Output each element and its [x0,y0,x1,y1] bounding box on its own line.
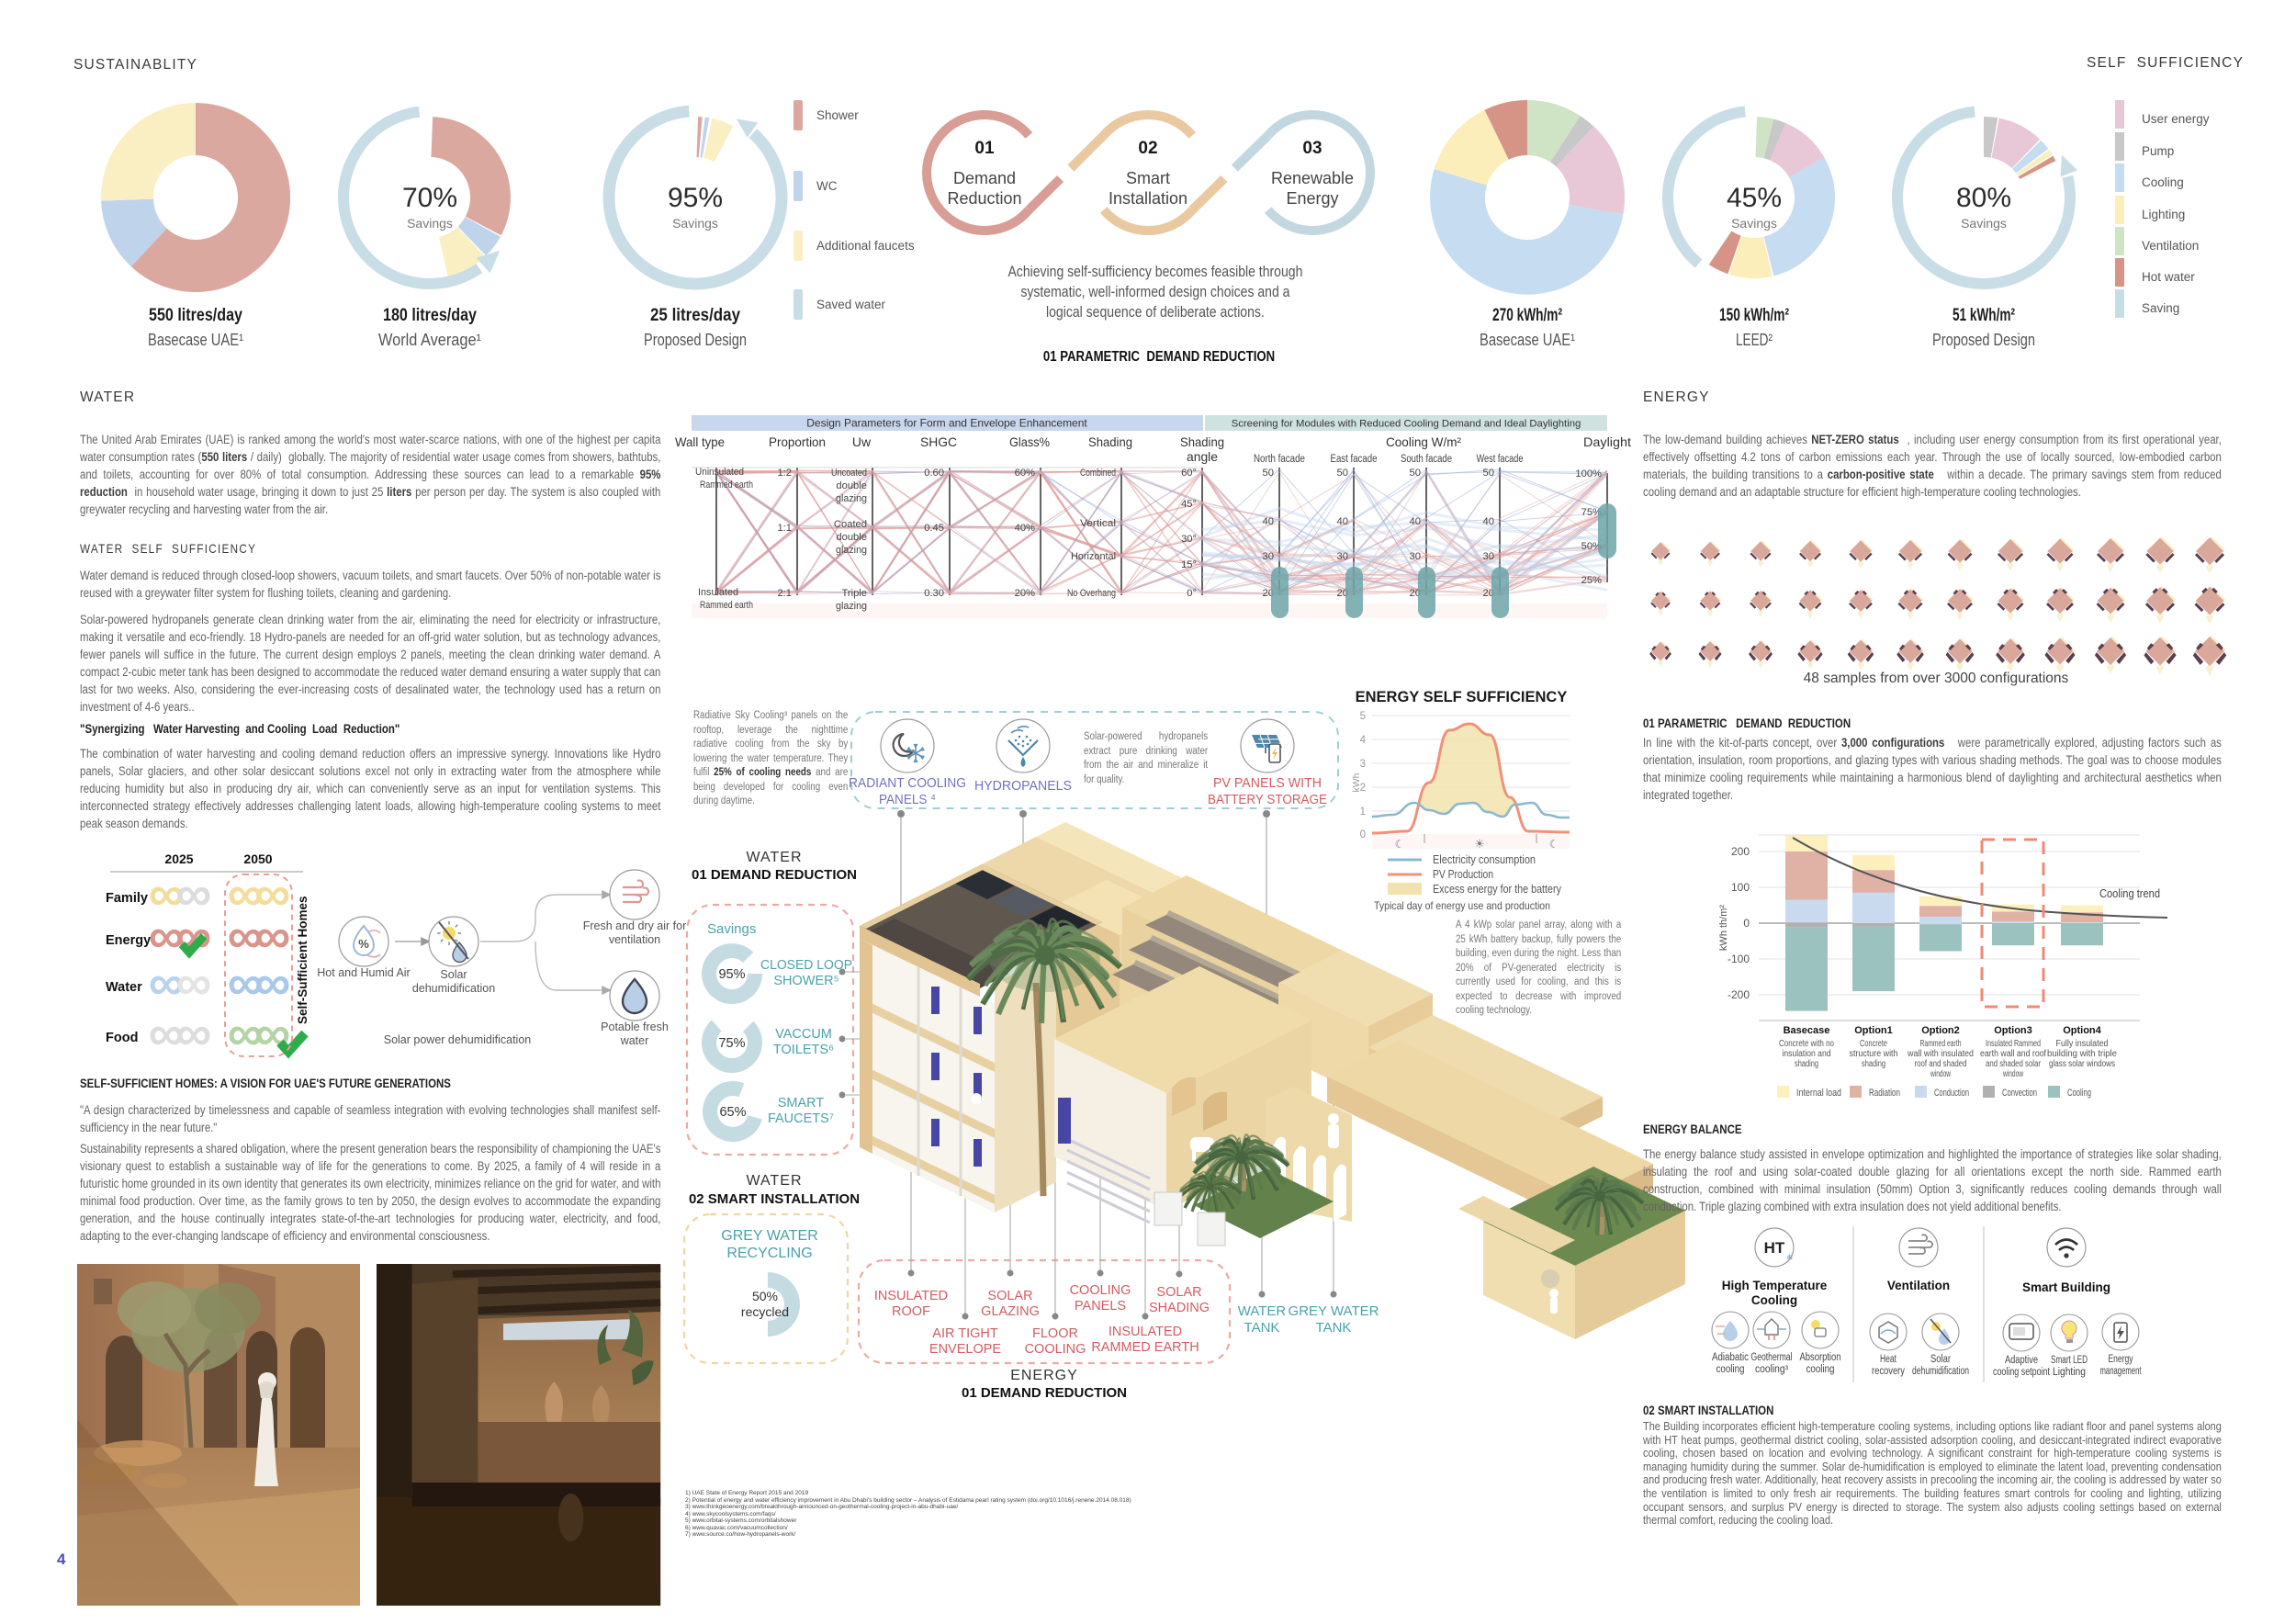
svg-text:0°: 0° [1187,588,1197,599]
svg-text:%: % [358,937,369,951]
svg-text:60°: 60° [1181,468,1197,479]
svg-text:Savings: Savings [1731,216,1777,231]
svg-text:Uninsulated: Uninsulated [695,467,744,478]
svg-text:glazing: glazing [836,601,867,612]
svg-text:GREY WATER: GREY WATER [721,1228,818,1244]
svg-text:Heat: Heat [1880,1354,1897,1365]
svg-text:70%: 70% [402,183,457,213]
svg-text:SHGC: SHGC [920,434,957,449]
svg-text:Ventilation: Ventilation [1887,1279,1950,1292]
svg-text:recycled: recycled [741,1304,789,1319]
svg-text:INSULATED: INSULATED [874,1289,948,1303]
svg-text:ENVELOPE: ENVELOPE [929,1342,1001,1357]
svg-text:building with triple: building with triple [2047,1049,2117,1059]
svg-text:East facade: East facade [1331,454,1378,465]
svg-text:angle: angle [1187,449,1218,464]
svg-text:PANELS: PANELS [1075,1299,1126,1314]
svg-text:RAMMED EARTH: RAMMED EARTH [1091,1340,1199,1355]
svg-text:Pump: Pump [2142,144,2174,158]
svg-text:30°: 30° [1181,534,1197,545]
svg-text:Energy: Energy [1286,189,1338,208]
svg-text:40: 40 [1263,516,1274,527]
svg-text:Hot water: Hot water [2142,270,2195,284]
svg-text:Installation: Installation [1109,189,1187,208]
svg-text:recovery: recovery [1872,1366,1905,1377]
svg-text:CLOSED LOOP: CLOSED LOOP [760,958,852,973]
svg-text:RECYCLING: RECYCLING [726,1246,812,1261]
svg-text:Additional faucets: Additional faucets [816,239,915,253]
svg-text:WC: WC [816,179,838,193]
svg-text:Food: Food [106,1031,138,1045]
svg-text:dehumidification: dehumidification [412,982,495,995]
svg-text:01 DEMAND REDUCTION: 01 DEMAND REDUCTION [692,867,857,883]
svg-text:ventilation: ventilation [609,933,660,946]
svg-text:48 samples from over 3000 conf: 48 samples from over 3000 configurations [1804,671,2069,686]
svg-text:insulation and: insulation and [1783,1049,1831,1059]
svg-text:Smart: Smart [1126,169,1170,187]
svg-text:80%: 80% [1956,183,2011,213]
svg-text:40: 40 [1337,516,1348,527]
svg-text:Electricity consumption: Electricity consumption [1433,853,1536,866]
svg-text:95%: 95% [718,967,745,982]
svg-text:Smart Building: Smart Building [2022,1280,2110,1294]
svg-text:1:2: 1:2 [777,468,792,479]
svg-text:Self-Sufficient Homes: Self-Sufficient Homes [296,896,310,1024]
svg-text:Reduction: Reduction [947,189,1021,208]
svg-text:VACCUM: VACCUM [775,1027,832,1042]
svg-text:50: 50 [1483,468,1494,479]
svg-text:Proposed Design: Proposed Design [1932,331,2035,349]
svg-text:Basecase: Basecase [1784,1025,1830,1036]
svg-text:180 litres/day: 180 litres/day [383,305,477,325]
svg-text:High Temperature: High Temperature [1722,1279,1828,1292]
svg-text:GLAZING: GLAZING [981,1304,1040,1319]
svg-text:Potable fresh: Potable fresh [601,1021,669,1033]
svg-text:200: 200 [1731,845,1750,858]
svg-text:World Average¹: World Average¹ [378,331,481,349]
svg-text:COOLING: COOLING [1070,1283,1131,1298]
svg-text:Shading: Shading [1180,434,1224,449]
svg-text:Daylight: Daylight [1583,434,1631,449]
svg-text:-100: -100 [1728,953,1750,965]
svg-text:kWh th/m²: kWh th/m² [1718,905,1729,951]
svg-text:Internal load: Internal load [1796,1088,1841,1099]
svg-text:Lighting: Lighting [2053,1367,2086,1378]
svg-text:cooling³: cooling³ [1755,1364,1788,1375]
svg-text:∞: ∞ [255,955,291,1010]
svg-text:SHOWER⁵: SHOWER⁵ [773,974,838,988]
svg-text:45%: 45% [1727,183,1782,213]
svg-text:5: 5 [1360,711,1366,722]
svg-text:shading: shading [1862,1059,1885,1069]
svg-text:SHADING: SHADING [1149,1301,1210,1315]
svg-text:WATER: WATER [747,850,803,865]
svg-text:User energy: User energy [2142,112,2210,126]
svg-text:Convection: Convection [2002,1088,2037,1099]
svg-text:PV Production: PV Production [1433,868,1493,881]
svg-text:Combined: Combined [1080,468,1116,479]
svg-text:Horizontal: Horizontal [1071,551,1116,562]
svg-text:50: 50 [1337,468,1348,479]
svg-text:North facade: North facade [1254,454,1305,465]
svg-text:Solar: Solar [1930,1354,1951,1365]
svg-text:shading: shading [1795,1059,1818,1069]
svg-text:glazing: glazing [836,545,867,556]
svg-text:45°: 45° [1181,499,1197,510]
svg-text:1: 1 [1360,806,1366,818]
svg-text:West facade: West facade [1477,454,1524,465]
svg-text:double: double [836,480,867,491]
svg-text:Shower: Shower [816,108,859,122]
svg-text:Absorption: Absorption [1800,1352,1841,1363]
svg-text:02 SMART INSTALLATION: 02 SMART INSTALLATION [689,1191,860,1207]
svg-text:South facade: South facade [1401,454,1452,465]
svg-text:SMART: SMART [778,1096,825,1111]
svg-text:HYDROPANELS: HYDROPANELS [974,778,1072,794]
svg-text:0.60: 0.60 [924,468,944,479]
svg-text:0: 0 [1360,829,1366,840]
svg-text:Concrete: Concrete [1860,1039,1887,1049]
svg-text:Savings: Savings [1961,216,2007,231]
svg-text:Adiabatic: Adiabatic [1712,1352,1749,1363]
svg-text:Radiation: Radiation [1869,1088,1900,1099]
svg-text:Adaptive: Adaptive [2005,1355,2038,1366]
svg-text:01 DEMAND REDUCTION: 01 DEMAND REDUCTION [962,1385,1127,1401]
svg-text:Option3: Option3 [1994,1025,2032,1036]
svg-text:Cooling: Cooling [1751,1293,1797,1307]
svg-text:window: window [2002,1069,2023,1079]
svg-text:roof and shaded: roof and shaded [1915,1059,1967,1069]
svg-text:50: 50 [1263,468,1274,479]
svg-text:TANK: TANK [1316,1320,1352,1336]
svg-text:1:1: 1:1 [777,523,792,534]
svg-text:30: 30 [1263,551,1274,562]
svg-text:Solar power dehumidification: Solar power dehumidification [384,1033,532,1046]
svg-text:Solar: Solar [440,968,467,981]
svg-text:Basecase UAE¹: Basecase UAE¹ [148,331,243,349]
svg-text:Energy: Energy [2109,1354,2133,1365]
svg-text:FAUCETS⁷: FAUCETS⁷ [768,1111,834,1126]
svg-text:glass solar windows: glass solar windows [2049,1059,2115,1069]
svg-text:Cooling trend: Cooling trend [2099,887,2160,900]
svg-text:Family: Family [106,891,148,906]
svg-text:double: double [836,532,867,543]
svg-text:Savings: Savings [707,921,756,937]
svg-text:WATER: WATER [747,1173,803,1189]
svg-text:Fresh and dry air for: Fresh and dry air for [583,919,687,932]
svg-text:dehumidification: dehumidification [1912,1366,1969,1377]
svg-text:95%: 95% [668,183,723,213]
svg-text:Demand: Demand [953,169,1016,187]
svg-text:Conduction: Conduction [1934,1088,1969,1099]
svg-text:Energy: Energy [106,933,151,948]
svg-text:Glass%: Glass% [1009,434,1050,449]
svg-text:25 litres/day: 25 litres/day [650,305,740,325]
svg-text:ROOF: ROOF [892,1304,930,1319]
svg-text:0: 0 [1743,917,1750,930]
svg-text:∞: ∞ [176,1006,212,1061]
svg-text:01: 01 [974,139,995,158]
svg-text:SOLAR: SOLAR [987,1289,1032,1303]
svg-text:ENERGY SELF SUFFICIENCY: ENERGY SELF SUFFICIENCY [1356,689,1568,705]
svg-text:TANK: TANK [1244,1320,1280,1336]
svg-text:3: 3 [1360,759,1366,770]
svg-text:Concrete with no: Concrete with no [1779,1039,1834,1049]
svg-text:cooling setpoint: cooling setpoint [1993,1367,2051,1378]
svg-text:4: 4 [1360,735,1367,746]
svg-text:Water: Water [106,980,142,995]
svg-text:25%: 25% [1581,575,1602,586]
svg-text:☾: ☾ [1395,838,1405,851]
svg-text:Rammed earth: Rammed earth [1920,1039,1962,1049]
svg-text:100: 100 [1731,881,1750,894]
svg-text:30: 30 [1337,551,1348,562]
svg-text:Screening for Modules with Red: Screening for Modules with Reduced Cooli… [1232,419,1581,430]
svg-text:Proportion: Proportion [769,434,826,449]
svg-text:20%: 20% [1015,588,1035,599]
svg-text:Cooling: Cooling [2067,1088,2091,1099]
svg-text:2:1: 2:1 [777,588,792,599]
svg-text:No Overhang: No Overhang [1067,588,1116,599]
svg-text:Rammed earth: Rammed earth [700,479,753,491]
svg-text:40: 40 [1410,516,1421,527]
svg-text:earth wall and roof: earth wall and roof [1980,1049,2046,1059]
svg-text:☾: ☾ [1549,838,1559,851]
svg-text:0.30: 0.30 [924,588,944,599]
svg-text:COOLING: COOLING [1025,1342,1086,1357]
svg-text:kWh: kWh [1351,773,1362,792]
svg-text:FLOOR: FLOOR [1032,1326,1078,1341]
svg-text:30: 30 [1483,551,1494,562]
svg-text:Insulated: Insulated [698,587,738,598]
svg-text:PANELS ⁴: PANELS ⁴ [879,792,936,807]
svg-text:-200: -200 [1728,988,1750,1001]
svg-text:☀: ☀ [1474,837,1485,851]
svg-text:glazing: glazing [836,493,867,504]
svg-text:40: 40 [1483,516,1494,527]
svg-text:Option2: Option2 [1921,1025,1960,1036]
svg-text:Uw: Uw [852,434,872,449]
svg-text:AIR TIGHT: AIR TIGHT [932,1326,998,1341]
svg-text:wall with insulated: wall with insulated [1907,1049,1974,1059]
svg-text:50%: 50% [752,1289,778,1303]
svg-text:Shading: Shading [1088,434,1132,449]
svg-text:75%: 75% [718,1036,745,1051]
svg-text:02: 02 [1138,139,1157,158]
svg-text:60%: 60% [1015,468,1035,479]
svg-text:Smart LED: Smart LED [2051,1355,2088,1366]
svg-text:2025: 2025 [164,851,193,866]
svg-text:51 kWh/m²: 51 kWh/m² [1953,305,2015,325]
svg-text:GREY WATER: GREY WATER [1289,1303,1379,1319]
svg-text:Lighting: Lighting [2142,208,2185,221]
svg-text:Design Parameters for Form and: Design Parameters for Form and Envelope … [806,417,1087,430]
svg-text:2050: 2050 [243,851,272,866]
svg-text:LEED²: LEED² [1736,331,1773,349]
svg-text:window: window [1930,1069,1951,1079]
svg-text:WATER: WATER [1238,1303,1287,1319]
svg-text:Uncoated: Uncoated [831,468,867,479]
svg-text:structure with: structure with [1850,1049,1898,1059]
svg-text:Fully insulated: Fully insulated [2056,1039,2109,1049]
svg-text:40%: 40% [1015,523,1035,534]
svg-text:270 kWh/m²: 270 kWh/m² [1492,305,1562,325]
svg-text:cooling: cooling [1806,1364,1835,1375]
svg-text:Renewable: Renewable [1271,169,1354,187]
svg-text:Excess energy for the battery: Excess energy for the battery [1433,883,1562,896]
svg-text:50: 50 [1410,468,1421,479]
svg-text:❄: ❄ [1786,1253,1794,1262]
svg-text:management: management [2100,1366,2143,1377]
svg-text:Hot and Humid Air: Hot and Humid Air [317,966,410,979]
svg-text:water: water [620,1034,649,1047]
svg-text:BATTERY STORAGE: BATTERY STORAGE [1208,792,1327,807]
svg-text:Typical day of energy use and: Typical day of energy use and production [1374,899,1550,912]
svg-text:Proposed Design: Proposed Design [644,331,747,349]
svg-text:15°: 15° [1181,559,1197,570]
svg-text:Option4: Option4 [2063,1025,2101,1036]
svg-text:INSULATED: INSULATED [1109,1325,1182,1339]
svg-text:Insulated Rammed: Insulated Rammed [1986,1039,2041,1049]
svg-text:Geothermal: Geothermal [1751,1352,1793,1363]
svg-text:03: 03 [1302,139,1322,158]
svg-text:and shaded solar: and shaded solar [1986,1059,2042,1069]
svg-text:Basecase UAE¹: Basecase UAE¹ [1480,331,1575,349]
svg-text:100%: 100% [1575,468,1602,479]
svg-text:HT: HT [1764,1239,1785,1257]
svg-text:cooling: cooling [1716,1364,1745,1375]
svg-text:Cooling: Cooling [2142,175,2184,189]
svg-text:550 litres/day: 550 litres/day [149,305,242,325]
svg-text:30: 30 [1410,551,1421,562]
svg-text:Savings: Savings [672,216,718,231]
svg-text:Ventilation: Ventilation [2142,239,2199,253]
svg-text:Wall type: Wall type [675,434,725,449]
svg-text:Option1: Option1 [1854,1025,1893,1036]
svg-text:Saved water: Saved water [816,298,886,311]
svg-text:SOLAR: SOLAR [1156,1285,1201,1300]
svg-text:Coated: Coated [834,519,867,530]
svg-text:TOILETS⁶: TOILETS⁶ [773,1043,834,1057]
svg-text:Saving: Saving [2142,301,2179,315]
svg-text:Savings: Savings [407,216,453,231]
svg-text:150 kWh/m²: 150 kWh/m² [1719,305,1789,325]
svg-text:Cooling W/m²: Cooling W/m² [1386,434,1461,449]
svg-text:Vertical: Vertical [1080,518,1116,529]
svg-text:Rammed earth: Rammed earth [700,600,753,611]
svg-text:∞: ∞ [176,955,212,1010]
svg-text:0.45: 0.45 [924,523,944,534]
svg-text:Triple: Triple [841,588,867,599]
svg-text:ENERGY: ENERGY [1010,1368,1078,1383]
svg-text:65%: 65% [719,1105,746,1120]
